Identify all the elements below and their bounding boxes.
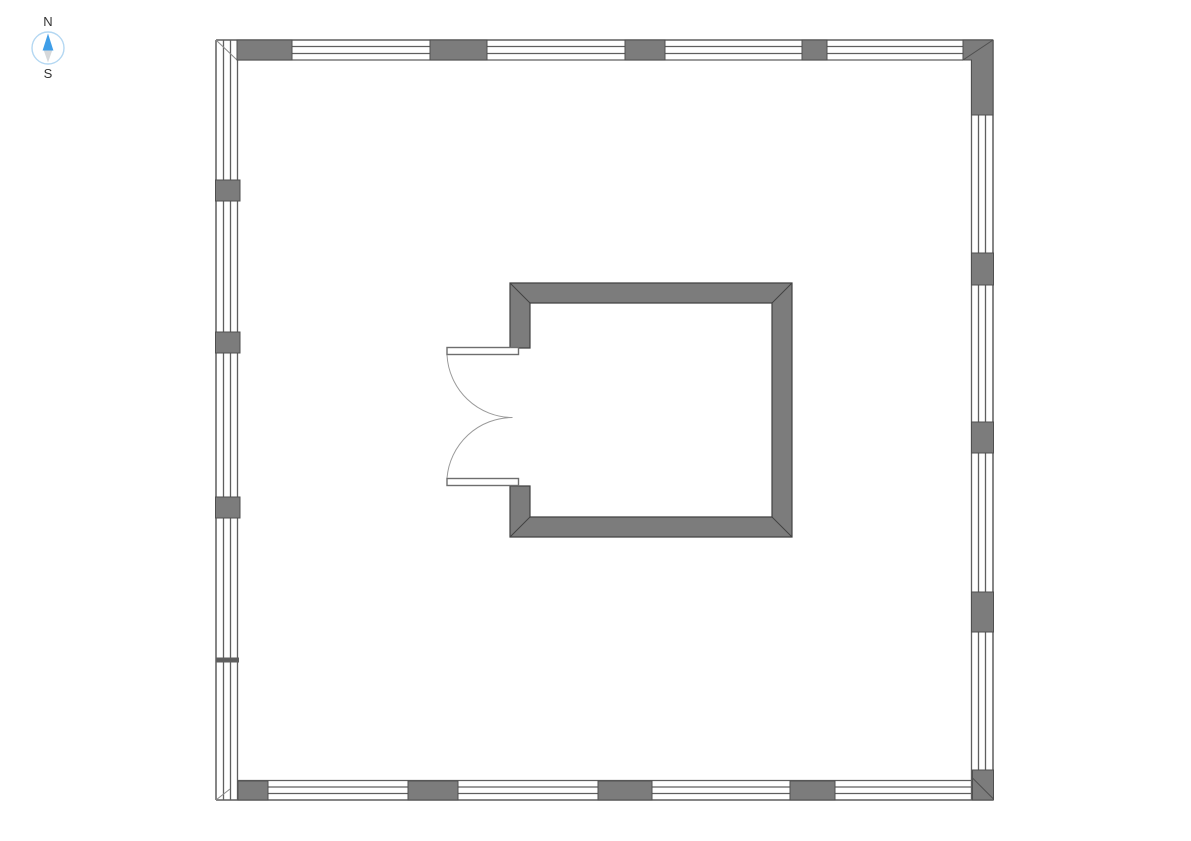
window-band-north — [237, 47, 963, 61]
wall-pier — [625, 40, 665, 60]
piers-west — [216, 180, 241, 663]
piers-south — [238, 781, 835, 800]
compass-needle-north — [43, 34, 54, 51]
compass-needle-south — [44, 51, 52, 63]
wall-pier — [216, 180, 241, 201]
floor-plan-canvas: N S — [0, 0, 1191, 841]
wall-pier — [598, 781, 652, 800]
exterior-wall-outline — [216, 40, 993, 800]
window-band-west — [224, 40, 238, 800]
wall-pier — [216, 497, 241, 518]
floor-plan-drawing: N S — [0, 0, 1191, 841]
wall-pier — [430, 40, 487, 60]
wall-pier — [216, 332, 241, 353]
door-swing-arc-top — [447, 355, 513, 418]
wall-pier — [972, 592, 994, 632]
compass-icon: N S — [32, 14, 64, 81]
wall-pier — [790, 781, 835, 800]
wall-pier — [802, 40, 827, 60]
wall-pier — [972, 253, 994, 285]
piers-north — [237, 40, 993, 115]
piers-east — [972, 253, 994, 800]
compass-north-label: N — [43, 14, 52, 29]
window-mullion-divider — [216, 658, 239, 663]
corner-pier-nw — [237, 40, 292, 60]
interior-room-wall — [510, 283, 792, 537]
double-door — [447, 348, 519, 486]
corner-pier-sw — [238, 781, 268, 800]
corner-pier-ne — [963, 40, 993, 115]
door-leaf-top — [447, 348, 519, 355]
door-leaf-bottom — [447, 479, 519, 486]
window-band-east — [972, 42, 986, 800]
door-swing-arc-bottom — [447, 418, 513, 479]
window-corner-miter-nw — [216, 40, 237, 60]
wall-pier — [972, 422, 994, 453]
interior-room — [510, 283, 792, 537]
compass-south-label: S — [44, 66, 53, 81]
wall-pier — [408, 781, 458, 800]
